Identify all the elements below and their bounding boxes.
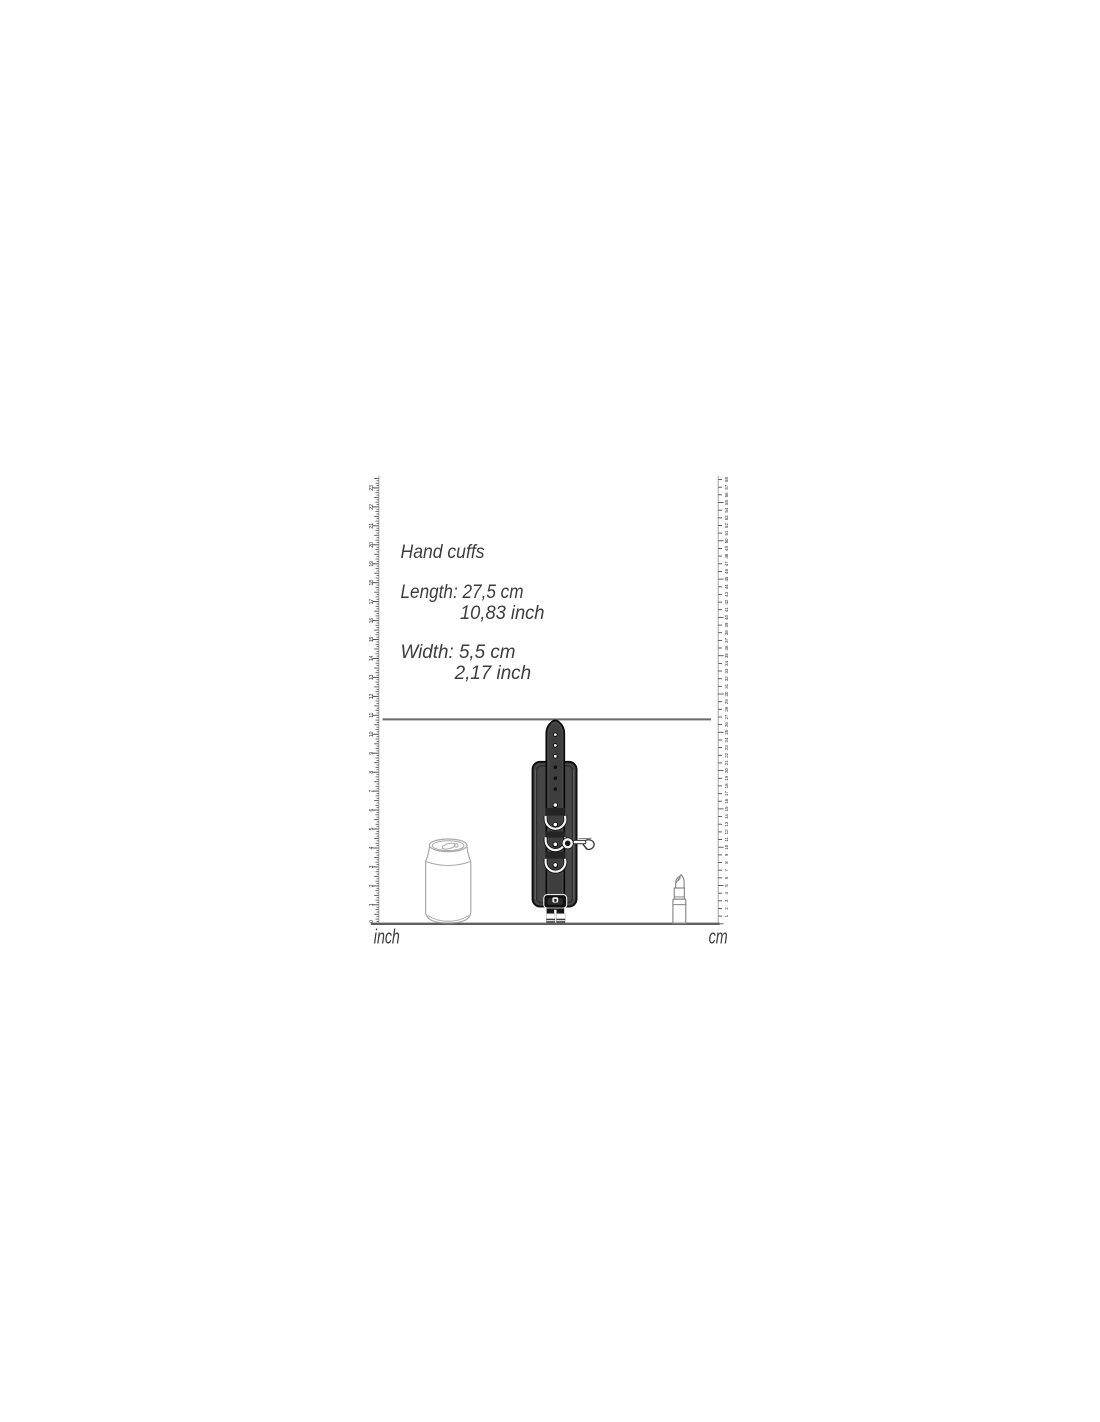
svg-text:29: 29 xyxy=(724,699,729,704)
svg-text:0: 0 xyxy=(369,920,375,923)
svg-text:20: 20 xyxy=(724,768,729,773)
svg-text:57: 57 xyxy=(724,484,729,489)
svg-text:38: 38 xyxy=(724,630,729,635)
svg-text:15: 15 xyxy=(724,806,729,811)
svg-text:35: 35 xyxy=(724,653,729,658)
svg-text:33: 33 xyxy=(724,668,729,673)
svg-text:4: 4 xyxy=(724,891,729,894)
svg-text:43: 43 xyxy=(724,591,729,596)
svg-text:11: 11 xyxy=(369,712,375,717)
svg-text:Hand cuffs: Hand cuffs xyxy=(401,541,485,563)
svg-text:23: 23 xyxy=(369,485,375,491)
svg-text:12: 12 xyxy=(724,829,729,834)
svg-text:21: 21 xyxy=(724,760,729,765)
svg-text:39: 39 xyxy=(724,622,729,627)
svg-text:1: 1 xyxy=(724,914,729,917)
svg-text:32: 32 xyxy=(724,676,729,681)
svg-text:Length: 27,5 cm: Length: 27,5 cm xyxy=(401,581,524,603)
svg-text:24: 24 xyxy=(724,737,729,742)
svg-text:41: 41 xyxy=(724,607,729,612)
svg-text:17: 17 xyxy=(724,791,729,796)
svg-text:22: 22 xyxy=(724,752,729,757)
svg-text:3: 3 xyxy=(369,865,375,868)
svg-text:13: 13 xyxy=(724,821,729,826)
svg-text:42: 42 xyxy=(724,599,729,604)
svg-text:4: 4 xyxy=(369,846,375,849)
svg-text:21: 21 xyxy=(369,523,375,529)
svg-text:36: 36 xyxy=(724,645,729,650)
svg-text:2: 2 xyxy=(724,907,729,910)
svg-text:15: 15 xyxy=(369,637,375,643)
svg-text:51: 51 xyxy=(724,530,729,535)
svg-text:16: 16 xyxy=(724,798,729,803)
svg-text:14: 14 xyxy=(369,656,375,662)
svg-text:7: 7 xyxy=(369,789,375,792)
svg-text:6: 6 xyxy=(724,876,729,879)
svg-text:50: 50 xyxy=(724,538,729,543)
svg-text:13: 13 xyxy=(369,674,375,680)
svg-text:27: 27 xyxy=(724,714,729,719)
svg-text:10: 10 xyxy=(369,731,375,737)
svg-text:54: 54 xyxy=(724,507,729,512)
svg-text:23: 23 xyxy=(724,745,729,750)
svg-text:37: 37 xyxy=(724,637,729,642)
svg-text:26: 26 xyxy=(724,722,729,727)
svg-text:cm: cm xyxy=(709,926,728,949)
svg-text:46: 46 xyxy=(724,568,729,573)
svg-text:48: 48 xyxy=(724,553,729,558)
svg-text:58: 58 xyxy=(724,477,729,482)
svg-text:8: 8 xyxy=(724,861,729,864)
svg-text:47: 47 xyxy=(724,561,729,566)
svg-text:14: 14 xyxy=(724,814,729,819)
svg-text:53: 53 xyxy=(724,515,729,520)
svg-text:30: 30 xyxy=(724,691,729,696)
svg-text:45: 45 xyxy=(724,576,729,581)
svg-text:49: 49 xyxy=(724,546,729,551)
svg-text:9: 9 xyxy=(369,752,375,755)
svg-text:9: 9 xyxy=(724,853,729,856)
svg-text:8: 8 xyxy=(369,771,375,774)
svg-text:17: 17 xyxy=(369,599,375,605)
svg-text:44: 44 xyxy=(724,584,729,589)
svg-text:25: 25 xyxy=(724,729,729,734)
svg-text:56: 56 xyxy=(724,492,729,497)
svg-text:10,83 inch: 10,83 inch xyxy=(460,602,545,624)
svg-text:7: 7 xyxy=(724,868,729,871)
svg-text:6: 6 xyxy=(369,808,375,811)
svg-text:20: 20 xyxy=(369,542,375,548)
svg-text:19: 19 xyxy=(369,561,375,567)
svg-text:18: 18 xyxy=(724,783,729,788)
svg-text:19: 19 xyxy=(724,775,729,780)
svg-text:11: 11 xyxy=(724,837,729,842)
svg-text:5: 5 xyxy=(724,884,729,887)
svg-text:55: 55 xyxy=(724,500,729,505)
svg-text:Width: 5,5 cm: Width: 5,5 cm xyxy=(401,641,516,663)
svg-text:18: 18 xyxy=(369,580,375,586)
svg-text:1: 1 xyxy=(369,903,375,906)
svg-text:22: 22 xyxy=(369,504,375,510)
svg-text:10: 10 xyxy=(724,844,729,849)
svg-text:2,17 inch: 2,17 inch xyxy=(454,662,531,684)
svg-text:3: 3 xyxy=(724,899,729,902)
svg-text:40: 40 xyxy=(724,614,729,619)
svg-text:12: 12 xyxy=(369,693,375,699)
svg-text:28: 28 xyxy=(724,706,729,711)
svg-text:16: 16 xyxy=(369,618,375,624)
svg-text:5: 5 xyxy=(369,827,375,830)
svg-text:2: 2 xyxy=(369,884,375,887)
svg-text:31: 31 xyxy=(724,683,729,688)
svg-text:inch: inch xyxy=(374,926,400,949)
svg-text:34: 34 xyxy=(724,660,729,665)
svg-text:52: 52 xyxy=(724,523,729,528)
